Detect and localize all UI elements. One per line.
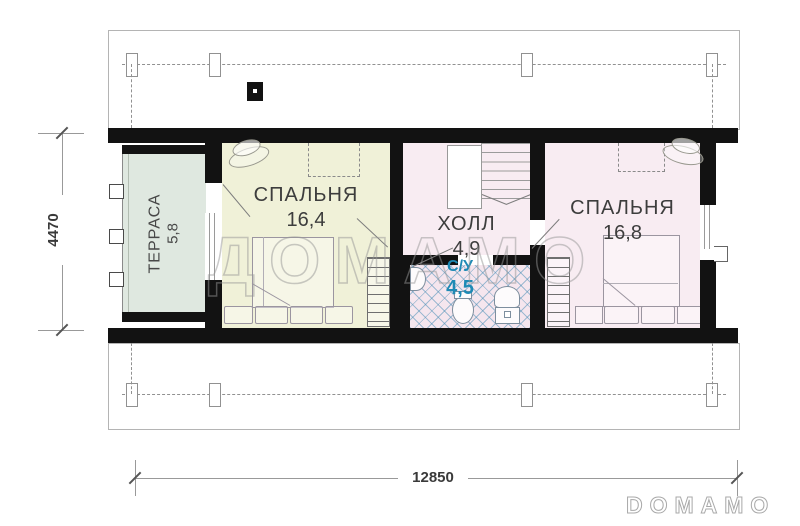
- chimney-flue: [253, 89, 257, 93]
- roof-edge-dashed: [712, 64, 713, 128]
- wall-bedroom1-hall: [390, 143, 403, 255]
- room-area: 5,8: [164, 193, 181, 273]
- room-name: ТЕРРАСА: [146, 193, 164, 273]
- roof-edge-dashed: [131, 343, 132, 394]
- room-name: СПАЛЬНЯ: [545, 196, 700, 221]
- bed-1-blanket-line: [263, 237, 264, 306]
- terrace-label: ТЕРРАСА 5,8: [122, 154, 205, 312]
- dim-line-vertical: [62, 133, 63, 202]
- bed-cushion: [255, 306, 288, 324]
- brand-logo: DOMAMO: [626, 492, 775, 519]
- wardrobe-dashed: [308, 143, 360, 177]
- bathroom-wall-left: [390, 255, 410, 328]
- bed-2-blanket-line: [603, 283, 678, 284]
- room-name: СПАЛЬНЯ: [222, 183, 390, 208]
- wall-terrace-bedroom1-upper: [205, 143, 222, 183]
- roof-notch: [209, 53, 221, 77]
- bed-cushion: [325, 306, 353, 324]
- window-frame: [709, 205, 710, 249]
- loft-ladder-1: [367, 257, 390, 327]
- bed-cushion: [641, 306, 675, 324]
- window-frame: [704, 205, 705, 249]
- wall-hall-bedroom2-upper: [530, 143, 545, 220]
- wall-top: [108, 128, 738, 143]
- roof-outline-bottom: [108, 343, 740, 430]
- roof-outline-top: [108, 30, 740, 130]
- roof-notch: [126, 53, 138, 77]
- bedroom-2-label: СПАЛЬНЯ 16,8: [545, 196, 700, 246]
- hall-label: ХОЛЛ 4,9: [403, 212, 530, 262]
- nightstand: [575, 306, 603, 324]
- toilet: [452, 296, 474, 324]
- room-area: 16,4: [222, 208, 390, 233]
- window-sill: [714, 246, 728, 262]
- wardrobe-dashed: [618, 143, 665, 172]
- wall-terrace-bedroom1-lower: [205, 280, 222, 328]
- room-area: 4,5: [408, 276, 512, 300]
- roof-edge-dashed: [712, 343, 713, 394]
- bed-cushion: [604, 306, 639, 324]
- roof-edge-dashed: [131, 64, 132, 128]
- loft-ladder-2: [547, 257, 570, 327]
- terrace-window-frame: [214, 213, 215, 280]
- wall-bottom: [108, 328, 738, 343]
- dim-line-vertical: [62, 258, 63, 330]
- bedroom-2-window: [700, 205, 716, 249]
- bed-1: [252, 237, 334, 308]
- roof-notch: [209, 383, 221, 407]
- dim-line-horizontal: [135, 478, 398, 479]
- bedroom-1-label: СПАЛЬНЯ 16,4: [222, 183, 390, 233]
- dim-width-value: 12850: [398, 468, 468, 488]
- room-name: ХОЛЛ: [403, 212, 530, 237]
- wall-right-lower: [700, 260, 716, 328]
- bathroom-label: С/У 4,5: [408, 257, 512, 300]
- roof-notch: [126, 383, 138, 407]
- floor-plan: ТЕРРАСА 5,8 СПАЛЬНЯ 16,4 ХОЛЛ 4,9: [0, 0, 800, 526]
- roof-notch: [521, 383, 533, 407]
- stair-void: [447, 145, 482, 209]
- roof-notch: [521, 53, 533, 77]
- bed-cushion: [224, 306, 253, 324]
- room-name: С/У: [408, 257, 512, 276]
- terrace-window-frame: [209, 213, 210, 280]
- dim-line-horizontal: [468, 478, 737, 479]
- terrace-wall-top: [122, 145, 205, 154]
- bed-cushion: [290, 306, 323, 324]
- terrace-wall-bottom: [122, 312, 205, 322]
- dim-depth-value: 4470: [45, 195, 65, 265]
- toilet-2-button: [504, 311, 511, 318]
- wall-hall-bedroom2-lower: [530, 245, 545, 328]
- room-area: 16,8: [545, 221, 700, 246]
